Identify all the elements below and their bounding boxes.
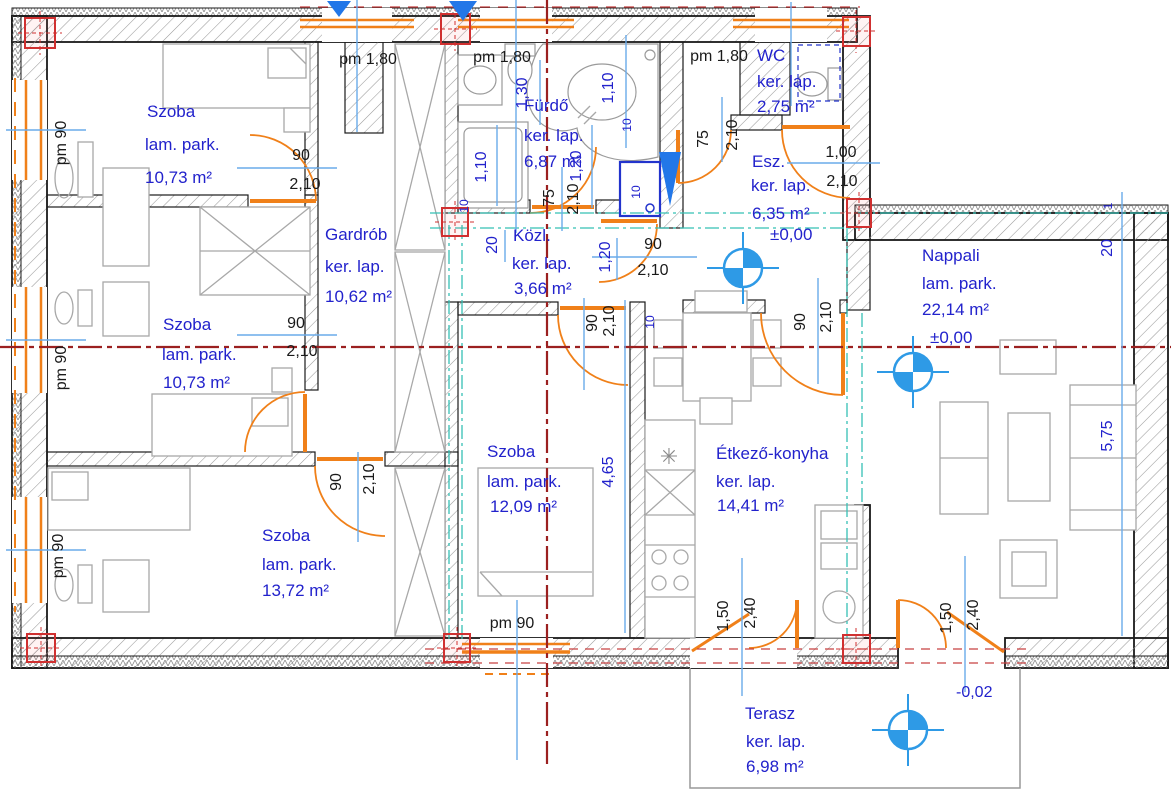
room-level: ±0,00: [770, 225, 812, 244]
window-dim: pm 90: [490, 615, 535, 632]
detail-dim: 10: [629, 185, 643, 199]
door-dim: 90: [328, 473, 345, 491]
room-name: Étkező-konyha: [716, 444, 829, 463]
room-area: 13,72 m²: [262, 581, 329, 600]
floor-plan-drawing: ✳: [0, 0, 1171, 800]
level-dim: -0,02: [956, 684, 993, 701]
room-floor: lam. park.: [145, 135, 220, 154]
door-dim: 90: [292, 147, 310, 164]
room-area: 6,35 m²: [752, 204, 810, 223]
room-name: Terasz: [745, 704, 795, 723]
room-area: 10,62 m²: [325, 287, 392, 306]
room-floor: lam. park.: [162, 345, 237, 364]
living-room-furniture: [940, 340, 1136, 598]
chair: [55, 292, 73, 324]
room-area: 2,75 m²: [757, 97, 815, 116]
detail-dim: 1,20: [568, 150, 585, 181]
door-dim: 2,10: [826, 173, 857, 190]
room-floor: ker. lap.: [512, 254, 572, 273]
room-name: Szoba: [163, 315, 212, 334]
room-area: 14,41 m²: [717, 496, 784, 515]
detail-dim: 1,20: [597, 241, 614, 272]
room-area: 10,73 m²: [163, 373, 230, 392]
kitchen-counter: ✳: [645, 420, 695, 638]
door-dim: 2,10: [289, 176, 320, 193]
door-dim: 90: [584, 314, 601, 332]
closet-strip: [395, 44, 445, 636]
desk: [103, 560, 149, 612]
target-symbol: [872, 694, 944, 766]
room-name: WC: [757, 46, 785, 65]
room-floor: ker. lap.: [325, 257, 385, 276]
armchair: [1000, 540, 1057, 598]
pc-tower: [78, 290, 92, 326]
room-area: 22,14 m²: [922, 300, 989, 319]
window-dim: pm 90: [53, 121, 70, 166]
corner-marker: [836, 628, 877, 670]
room-area: 6,98 m²: [746, 757, 804, 776]
pc-tower: [78, 142, 93, 197]
dining-table: [683, 313, 751, 401]
detail-dim: 4,65: [600, 456, 617, 487]
pillow: [52, 472, 88, 500]
door-dim: 1,50: [938, 602, 955, 633]
detail-dim: 20: [1099, 239, 1116, 257]
door-dim: 2,10: [361, 463, 378, 494]
window-dim: pm 90: [50, 534, 67, 579]
coffee-table: [1008, 413, 1050, 501]
door-dim: 2,40: [742, 597, 759, 628]
corner-marker: [437, 627, 477, 669]
detail-dim: 20: [484, 236, 501, 254]
nightstand: [284, 108, 310, 132]
detail-dim: 1,30: [514, 77, 531, 108]
pillow: [268, 48, 306, 78]
nightstand: [272, 368, 292, 392]
room-name: Nappali: [922, 246, 980, 265]
door-dim: 90: [644, 236, 662, 253]
detail-dim: 10: [620, 118, 634, 132]
room-name: Szoba: [487, 442, 536, 461]
chair: [700, 398, 732, 424]
kitchen-tall-unit: [815, 505, 863, 638]
freezer-icon: ✳: [660, 444, 678, 469]
room-floor: ker. lap.: [716, 472, 776, 491]
room-name: Gardrób: [325, 225, 387, 244]
faucet: [645, 50, 655, 60]
door-dim: 1,00: [825, 144, 856, 161]
window-dim: pm 1,80: [690, 48, 748, 65]
chair: [654, 320, 682, 348]
room-floor: lam. park.: [262, 555, 337, 574]
room-area: 10,73 m²: [145, 168, 212, 187]
armchair: [1000, 340, 1056, 374]
door-dim: 2,10: [286, 343, 317, 360]
room-name: Közl.: [513, 226, 551, 245]
room-name: Esz.: [752, 152, 785, 171]
room-floor: ker. lap.: [751, 176, 811, 195]
desk: [103, 282, 149, 336]
room-floor: lam. park.: [922, 274, 997, 293]
corner-marker: [18, 11, 62, 55]
detail-dim: 10: [457, 199, 471, 213]
floor-plan-canvas: ✳: [0, 0, 1171, 800]
detail-dim: 5,75: [1099, 420, 1116, 451]
door-dim: 75: [541, 189, 558, 207]
door-dim: 90: [287, 315, 305, 332]
chair: [654, 358, 682, 386]
detail-dim: 1: [1101, 202, 1115, 209]
window-dim: pm 90: [53, 346, 70, 391]
door-dim: 1,50: [715, 600, 732, 631]
room-name: Szoba: [262, 526, 311, 545]
detail-dim: 1,10: [473, 151, 490, 182]
door-dim: 2,10: [601, 305, 618, 336]
room-area: 3,66 m²: [514, 279, 572, 298]
door-dim: 2,10: [637, 262, 668, 279]
door-dim: 75: [695, 130, 712, 148]
wardrobe: [200, 207, 310, 295]
door-dim: 2,40: [965, 599, 982, 630]
window-dim: pm 1,80: [473, 49, 531, 66]
corner-marker: [20, 627, 62, 669]
corner-marker: [836, 10, 877, 53]
room-name: Szoba: [147, 102, 196, 121]
door-dim: 2,10: [818, 301, 835, 332]
room-floor: lam. park.: [487, 472, 562, 491]
window-dim: pm 1,80: [339, 51, 397, 68]
desk: [103, 168, 149, 266]
door-dim: 2,10: [565, 183, 582, 214]
washbasin: [464, 66, 496, 94]
room-floor: ker. lap.: [746, 732, 806, 751]
pc-tower: [78, 565, 92, 603]
bench: [695, 291, 747, 312]
door-dim: 90: [792, 313, 809, 331]
detail-dim: 1,10: [600, 72, 617, 103]
detail-dim: 10: [643, 315, 657, 329]
room-level: ±0,00: [930, 328, 972, 347]
room-area: 12,09 m²: [490, 497, 557, 516]
corner-marker: [434, 7, 477, 51]
door-dim: 2,10: [724, 119, 741, 150]
room-floor: ker. lap.: [524, 126, 584, 145]
room-floor: ker. lap.: [757, 72, 817, 91]
